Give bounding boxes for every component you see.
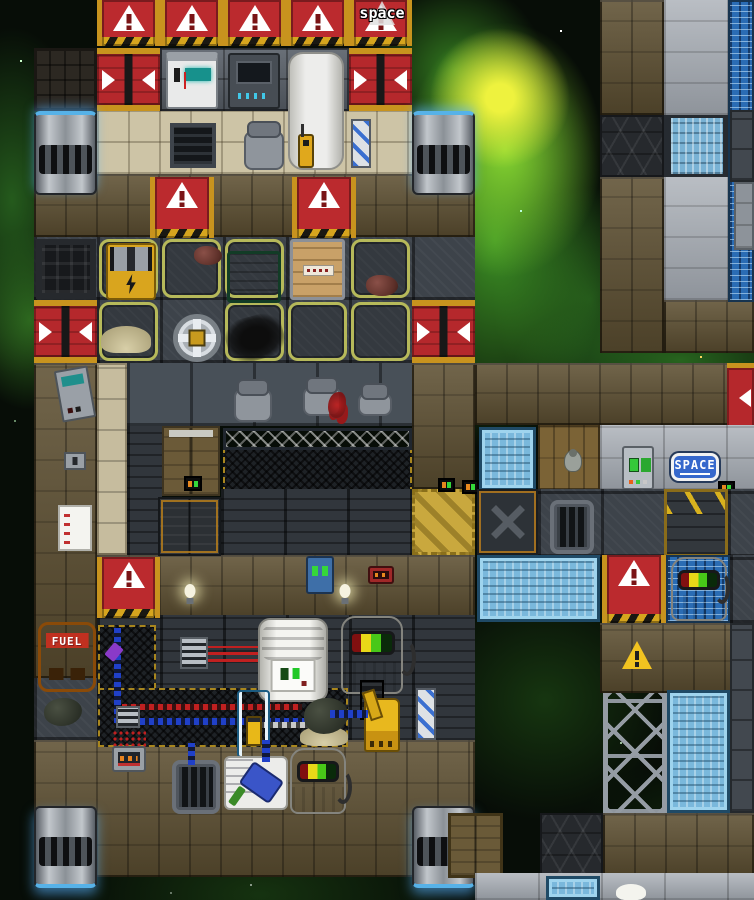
game-viewport[interactable]: FUELSPACEspace: [0, 0, 754, 900]
corridor-floor: [730, 555, 754, 623]
space-sign: SPACE: [671, 453, 719, 481]
wooden-crate[interactable]: [290, 239, 345, 300]
dark-wall-block: [34, 48, 97, 111]
ship-wall-right: [412, 363, 475, 489]
supply-beacon[interactable]: [173, 314, 221, 362]
fire-alarm[interactable]: [368, 566, 394, 584]
window: [664, 115, 730, 177]
sand-pile[interactable]: [101, 326, 151, 353]
mouse[interactable]: [616, 884, 646, 900]
fax-console[interactable]: [166, 52, 218, 109]
cell-charger[interactable]: [106, 243, 156, 300]
wall-cabinet[interactable]: [351, 119, 371, 168]
wall-panel[interactable]: [58, 505, 92, 551]
station-wall: [475, 873, 754, 900]
blast-shutter[interactable]: [664, 489, 728, 557]
firelock[interactable]: [150, 177, 214, 238]
thruster: [34, 806, 97, 888]
wall-light: [182, 580, 198, 606]
fuel-tank[interactable]: FUEL: [38, 622, 96, 692]
firelock[interactable]: [349, 0, 412, 46]
air-vent: [170, 123, 216, 168]
escape-airlock-left[interactable]: [97, 48, 160, 111]
escape-airlock-right[interactable]: [349, 48, 412, 111]
beige-pillar: [97, 363, 127, 555]
cargo-door[interactable]: [448, 813, 503, 878]
robot-hose: [398, 640, 416, 676]
machine[interactable]: [730, 110, 754, 182]
office-chair[interactable]: [238, 120, 290, 182]
alarm-panel[interactable]: [112, 746, 146, 772]
wall-light: [337, 580, 353, 606]
firelock[interactable]: [286, 0, 349, 46]
firelock[interactable]: [602, 555, 666, 623]
thruster: [34, 111, 97, 195]
firelock[interactable]: [223, 0, 286, 46]
operating-table[interactable]: [288, 52, 344, 170]
firelock[interactable]: [97, 0, 160, 46]
robot-hose: [714, 572, 730, 604]
firelock[interactable]: [292, 177, 356, 238]
ore-chunk[interactable]: [194, 246, 222, 265]
firelock[interactable]: [160, 0, 223, 46]
station-wall: [603, 813, 754, 878]
mass-driver-tile: [477, 489, 538, 555]
ore-chunk[interactable]: [366, 275, 398, 296]
starfield: [560, 30, 562, 32]
station-wall: [600, 177, 664, 353]
window: [667, 690, 730, 813]
power-cable: [262, 740, 270, 762]
power-cable: [122, 704, 302, 710]
hex-corridor: [600, 115, 664, 177]
airlock[interactable]: [727, 363, 754, 432]
station-wall: [475, 363, 754, 425]
apc[interactable]: [306, 556, 334, 594]
firelock[interactable]: [97, 557, 160, 618]
floor-vent: [172, 760, 220, 814]
station-wall: [664, 300, 754, 353]
station-wall: [664, 177, 730, 300]
status-light: [438, 478, 455, 492]
apc[interactable]: [622, 446, 654, 490]
floor-vent: [550, 500, 594, 554]
large-vent: [36, 239, 96, 299]
truss-lattice: [603, 693, 667, 813]
corridor-floor: [728, 489, 754, 557]
cargo-pad: [351, 302, 410, 361]
moth[interactable]: [564, 450, 582, 472]
light-switch[interactable]: [64, 452, 86, 470]
tool-tray[interactable]: [224, 756, 288, 810]
window: [223, 428, 412, 450]
window: [479, 427, 536, 491]
hex-corridor: [540, 813, 603, 878]
cargo-airlock-left[interactable]: [34, 300, 97, 363]
thruster: [412, 111, 475, 195]
ship-wall-mid: [34, 174, 475, 237]
robot-hose: [334, 770, 352, 804]
station-wall: [664, 0, 730, 115]
machine-stack[interactable]: [730, 623, 754, 813]
cable-connector[interactable]: [180, 637, 208, 669]
cargo-pad: [288, 302, 347, 361]
wall-cabinet[interactable]: [416, 688, 436, 740]
power-wires: [208, 646, 260, 662]
handheld-radio[interactable]: [298, 134, 314, 168]
station-wall: [600, 0, 664, 115]
window: [477, 555, 600, 622]
window: [546, 876, 600, 900]
office-chair[interactable]: [228, 378, 278, 434]
status-light: [184, 476, 202, 491]
grille-floor: [223, 447, 412, 493]
portable-generator[interactable]: [258, 618, 328, 702]
secure-crate[interactable]: [227, 251, 281, 303]
mule-robot[interactable]: [364, 698, 400, 752]
floor-hatch[interactable]: [158, 497, 221, 556]
power-cable: [330, 710, 368, 718]
plate-floor: [221, 489, 412, 555]
office-chair[interactable]: [352, 382, 398, 428]
corridor-plate: [127, 426, 162, 555]
power-cable: [188, 743, 195, 765]
cable-connector[interactable]: [116, 706, 140, 728]
wall-console[interactable]: [228, 53, 280, 109]
cargo-airlock-right[interactable]: [412, 300, 475, 363]
machine[interactable]: [734, 182, 754, 250]
hazard-floor-tile: [412, 489, 475, 555]
